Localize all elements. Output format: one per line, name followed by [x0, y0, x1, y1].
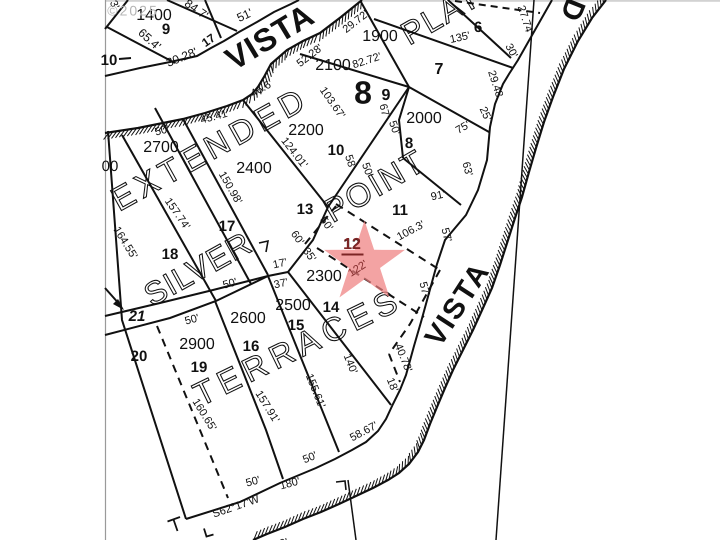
svg-text:2100: 2100 — [315, 57, 351, 74]
svg-text:12: 12 — [343, 236, 361, 253]
svg-text:17: 17 — [219, 218, 236, 235]
svg-text:©2025: ©2025 — [107, 3, 158, 19]
svg-text:9: 9 — [162, 21, 170, 38]
svg-text:8: 8 — [354, 74, 372, 110]
svg-text:00: 00 — [102, 158, 119, 175]
svg-text:20: 20 — [131, 348, 148, 365]
svg-text:2900: 2900 — [179, 336, 215, 353]
svg-text:1900: 1900 — [362, 28, 398, 45]
svg-text:7: 7 — [435, 61, 444, 78]
svg-text:14: 14 — [323, 299, 340, 316]
svg-text:2700: 2700 — [143, 139, 179, 156]
svg-text:2200: 2200 — [288, 122, 324, 139]
svg-text:8: 8 — [405, 135, 413, 152]
svg-text:2400: 2400 — [236, 160, 272, 177]
svg-text:16: 16 — [243, 338, 260, 355]
svg-text:2600: 2600 — [230, 310, 266, 327]
svg-text:19: 19 — [191, 359, 208, 376]
svg-text:15: 15 — [288, 317, 305, 334]
svg-text:18: 18 — [162, 246, 179, 263]
svg-text:10: 10 — [101, 52, 118, 69]
svg-text:9: 9 — [382, 87, 391, 104]
svg-text:6: 6 — [474, 19, 482, 36]
svg-text:21: 21 — [128, 308, 146, 325]
svg-text:10: 10 — [328, 142, 345, 159]
svg-text:2300: 2300 — [306, 268, 342, 285]
svg-text:13: 13 — [297, 201, 314, 218]
svg-text:11: 11 — [392, 202, 408, 219]
svg-text:2000: 2000 — [406, 110, 442, 127]
svg-text:2500: 2500 — [275, 297, 311, 314]
